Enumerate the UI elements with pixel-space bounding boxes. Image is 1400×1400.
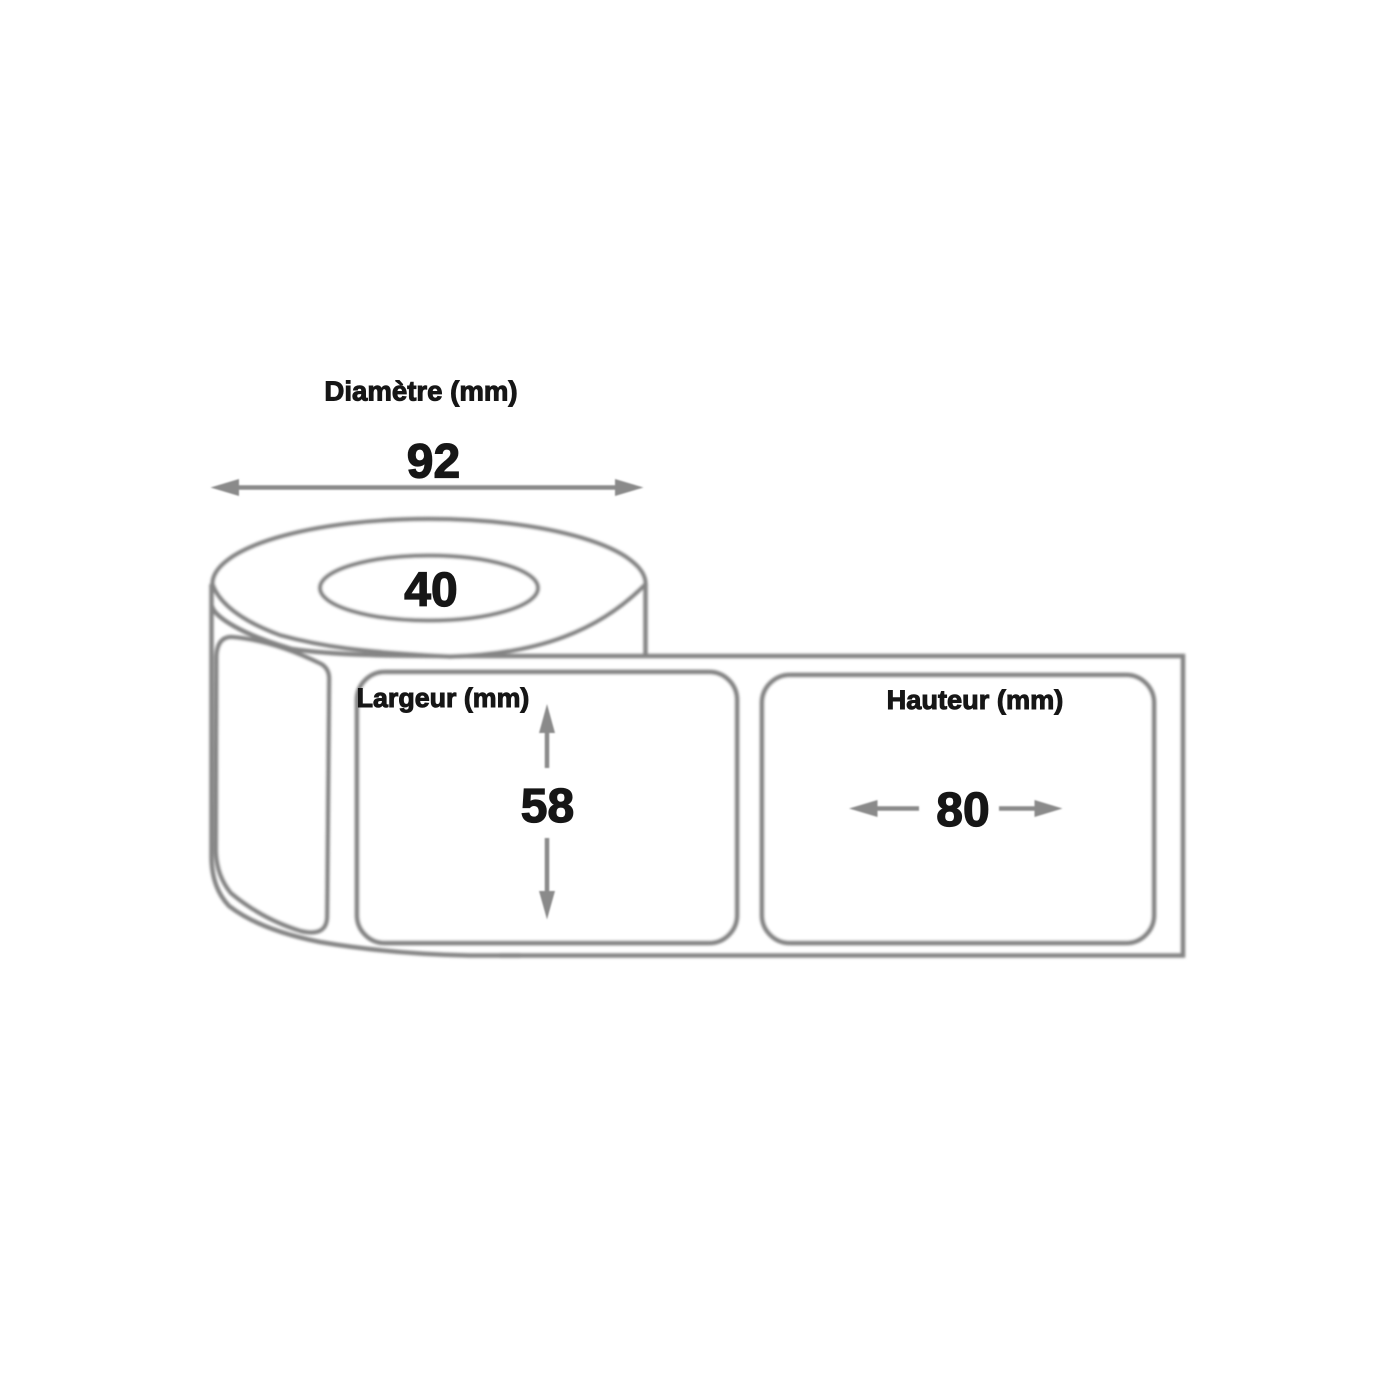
svg-text:Hauteur (mm): Hauteur (mm) [887,684,1064,715]
svg-text:92: 92 [407,436,460,489]
svg-text:80: 80 [936,784,989,837]
svg-text:Largeur (mm): Largeur (mm) [357,683,530,713]
svg-text:Diamètre (mm): Diamètre (mm) [324,376,517,407]
svg-text:58: 58 [521,780,574,833]
svg-text:40: 40 [404,564,457,617]
